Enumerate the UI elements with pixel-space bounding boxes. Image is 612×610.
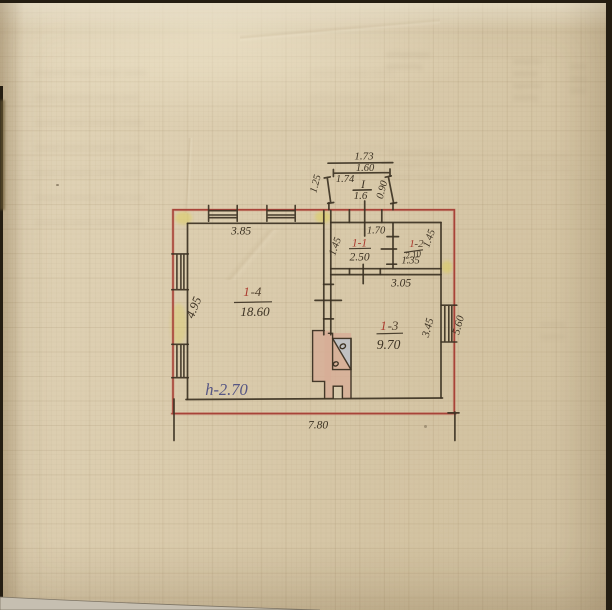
svg-text:1.25: 1.25: [308, 174, 323, 195]
svg-text:3.45: 3.45: [420, 316, 437, 339]
svg-text:18.60: 18.60: [240, 304, 270, 319]
svg-text:3.05: 3.05: [390, 278, 411, 290]
svg-text:9.70: 9.70: [377, 337, 401, 352]
svg-text:1.35: 1.35: [401, 256, 419, 267]
svg-text:1.45: 1.45: [421, 228, 438, 249]
svg-text:I: I: [360, 179, 366, 191]
svg-text:1-1: 1-1: [352, 238, 367, 250]
svg-text:4.95: 4.95: [183, 295, 204, 321]
svg-text:0.90: 0.90: [375, 179, 391, 200]
svg-text:1: 1: [409, 238, 415, 250]
svg-text:1.74: 1.74: [336, 174, 355, 185]
svg-text:1.73: 1.73: [354, 151, 374, 163]
svg-text:2.50: 2.50: [349, 252, 369, 264]
svg-text:1: 1: [380, 318, 387, 333]
svg-text:1.60: 1.60: [356, 163, 375, 174]
svg-text:-2: -2: [414, 238, 424, 250]
svg-text:7.80: 7.80: [308, 420, 328, 432]
svg-text:3.85: 3.85: [230, 226, 251, 238]
svg-text:5.60: 5.60: [450, 314, 467, 336]
svg-text:1: 1: [243, 284, 250, 299]
svg-text:1.70: 1.70: [367, 226, 386, 237]
svg-text:1.45: 1.45: [327, 236, 344, 257]
svg-text:-4: -4: [251, 284, 262, 299]
svg-text:-3: -3: [388, 318, 399, 333]
svg-text:h-2.70: h-2.70: [205, 380, 248, 399]
svg-text:2.10: 2.10: [405, 248, 422, 260]
svg-text:1.6: 1.6: [354, 190, 368, 202]
